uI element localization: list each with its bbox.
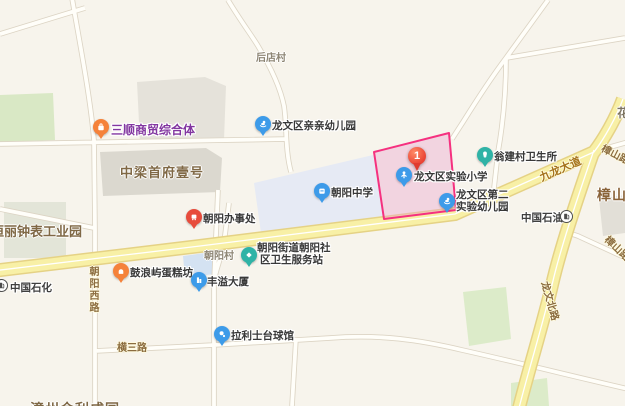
area-label-zhangzhou-partial[interactable]: 漳州金利成园 [30, 399, 120, 406]
area-label-hengli[interactable]: 恒丽钟表工业园 [0, 221, 82, 240]
poi-pin-zhongxue[interactable] [314, 183, 330, 199]
poi-label-petrochina[interactable]: 中国石油 [521, 210, 563, 225]
road-label-chaoyangxilu: 朝阳西路 [85, 266, 100, 314]
marker-tail [413, 163, 421, 171]
marker-number: 1 [408, 150, 426, 162]
kindergarten-icon [442, 196, 452, 206]
gas-pump-icon-petrochina[interactable] [560, 210, 573, 223]
poi-label-shequ-line2[interactable]: 区卫生服务站 [260, 252, 323, 267]
poi-label-gulangyu[interactable]: 鼓浪屿蛋糕坊 [130, 265, 193, 280]
numbered-marker-1[interactable]: 1 [408, 147, 426, 173]
poi-label-wengjian[interactable]: 翁建村卫生所 [494, 149, 557, 164]
gas-pump-icon [562, 212, 571, 221]
poi-pin-shequ[interactable] [241, 247, 257, 263]
school-icon [317, 186, 327, 196]
billiards-icon [217, 329, 227, 339]
poi-pin-banshichu[interactable] [186, 209, 202, 225]
area-label-zhangshanhuayuan[interactable]: 樟山花园 [597, 185, 625, 205]
poi-label-sinopec[interactable]: 中国石化 [10, 280, 52, 295]
shopping-bag-icon [96, 122, 106, 132]
poi-pin-fengyi[interactable] [191, 272, 207, 288]
poi-label-fengyi[interactable]: 丰溢大厦 [207, 274, 249, 289]
green-area [463, 287, 511, 346]
poi-pin-lalishi[interactable] [214, 326, 230, 342]
poi-label-banshichu[interactable]: 朝阳办事处 [203, 211, 256, 226]
poi-label-sanshun[interactable]: 三顺商贸综合体 [111, 121, 195, 138]
bakery-icon [116, 266, 126, 276]
gas-pump-icon [0, 281, 6, 290]
health-station-icon [244, 250, 254, 260]
building-icon [194, 275, 204, 285]
poi-pin-dier-youeryuan[interactable] [439, 193, 455, 209]
poi-pin-qinqin[interactable] [255, 116, 271, 132]
map-canvas[interactable]: 朝阳西路 横三路 九龙大道 龙文北路 樟山路 樟山路 后店村 朝阳村 中梁首府壹… [0, 0, 625, 406]
poi-label-qinqin[interactable]: 龙文区亲亲幼儿园 [272, 118, 356, 133]
green-area [0, 93, 55, 142]
village-label-chaoyangcun: 朝阳村 [204, 247, 234, 262]
road-label-hengsanlu: 横三路 [117, 339, 147, 354]
poi-label-lalishi[interactable]: 拉利士台球馆 [231, 328, 294, 343]
map-geometry [0, 0, 625, 406]
village-label-houdiancun: 后店村 [256, 49, 286, 64]
area-label-corner-partial: 花 [617, 104, 625, 121]
clinic-tooth-icon [480, 150, 490, 160]
poi-pin-sanshun[interactable] [93, 119, 109, 135]
government-office-icon [189, 212, 199, 222]
poi-label-dier-youeryuan-line2[interactable]: 实验幼儿园 [456, 199, 509, 214]
poi-pin-wengjian[interactable] [477, 147, 493, 163]
poi-pin-gulangyu[interactable] [113, 263, 129, 279]
area-label-zhongliang[interactable]: 中梁首府壹号 [120, 162, 204, 181]
kindergarten-icon [258, 119, 268, 129]
poi-label-zhongxue[interactable]: 朝阳中学 [331, 185, 373, 200]
